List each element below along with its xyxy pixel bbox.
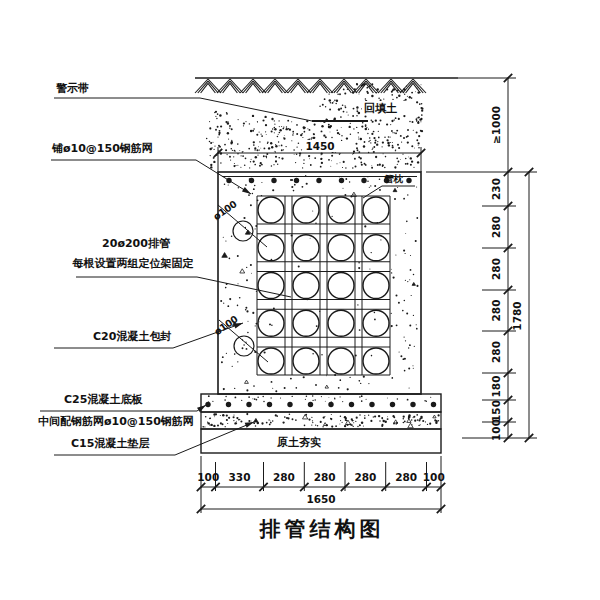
speckle (415, 91, 416, 92)
speckle (280, 397, 281, 398)
speckle (257, 121, 258, 122)
speckle (364, 163, 366, 165)
right-dim-label: 280 (490, 341, 502, 363)
speckle (235, 165, 236, 166)
speckle (266, 422, 268, 424)
backfill-speckles (206, 83, 424, 169)
speckle (403, 422, 405, 424)
speckle (399, 351, 400, 352)
aggregate-triangle (393, 188, 397, 191)
speckle (223, 388, 225, 390)
speckle (243, 217, 245, 219)
speckle (402, 154, 403, 155)
speckle (374, 185, 376, 187)
compacted-soil-band (201, 429, 441, 453)
speckle (334, 100, 336, 102)
speckle (286, 128, 288, 130)
speckle (243, 122, 245, 124)
speckle (245, 307, 247, 309)
speckle (409, 344, 411, 346)
speckle (252, 398, 253, 399)
speckle (425, 421, 426, 422)
pipe-circle (363, 197, 389, 223)
speckle (400, 91, 401, 92)
speckle (363, 425, 364, 426)
speckle (323, 416, 325, 418)
speckle (379, 119, 381, 121)
speckle (411, 295, 412, 296)
speckle (231, 128, 233, 130)
speckle (246, 310, 248, 312)
speckle (308, 419, 310, 421)
speckle (359, 424, 361, 426)
speckle (368, 129, 369, 130)
speckle (397, 90, 399, 92)
speckle (220, 125, 222, 127)
speckle (296, 124, 298, 126)
speckle (336, 130, 338, 132)
speckle (424, 400, 426, 402)
speckle (253, 128, 254, 129)
speckle (380, 239, 381, 240)
speckle (282, 421, 284, 423)
speckle (309, 129, 311, 131)
speckle (206, 138, 207, 139)
speckle (394, 166, 396, 168)
speckle (406, 313, 408, 315)
speckle (414, 420, 416, 422)
speckle (254, 149, 255, 150)
pipe-circle (293, 235, 319, 261)
right-dim-label: 100 (490, 419, 502, 441)
speckle (234, 353, 236, 355)
speckle (421, 108, 423, 110)
speckle (395, 294, 397, 296)
speckle (222, 414, 224, 416)
speckle (329, 109, 331, 111)
speckle (274, 127, 276, 129)
speckle (364, 225, 366, 227)
speckle (281, 145, 283, 147)
speckle (272, 388, 273, 389)
speckle (325, 401, 326, 402)
speckle (335, 425, 337, 427)
speckle (328, 159, 330, 161)
speckle (370, 119, 372, 121)
speckle (350, 123, 351, 124)
pipe-circle (293, 348, 319, 374)
speckle (347, 89, 348, 90)
speckle (386, 123, 388, 125)
speckle (212, 401, 213, 402)
speckle (391, 120, 393, 122)
speckle (234, 396, 236, 398)
speckle (311, 424, 312, 425)
speckle (346, 112, 347, 113)
speckle (404, 421, 406, 423)
speckle (413, 416, 415, 418)
speckle (233, 416, 235, 418)
speckle (365, 124, 367, 126)
speckle (400, 135, 402, 137)
speckle (214, 416, 215, 417)
speckle (405, 233, 406, 234)
speckle (248, 194, 250, 196)
speckle (372, 148, 373, 149)
speckle (213, 161, 215, 163)
speckle (357, 304, 358, 305)
speckle (293, 190, 295, 192)
speckle (248, 396, 250, 398)
speckle (252, 193, 254, 195)
pipe-circle (258, 235, 284, 261)
rebar-dot (294, 178, 299, 183)
speckle (397, 144, 399, 146)
speckle (226, 113, 228, 115)
speckle (438, 414, 440, 416)
speckle (279, 145, 280, 146)
speckle (313, 137, 315, 139)
speckle (375, 120, 377, 122)
speckle (291, 186, 293, 188)
aggregate-triangle (407, 419, 411, 423)
speckle (410, 255, 411, 256)
speckle (416, 324, 417, 325)
speckle (369, 268, 370, 269)
speckle (236, 423, 238, 425)
speckle (226, 353, 227, 354)
speckle (273, 164, 274, 165)
speckle (215, 111, 217, 113)
speckle (306, 395, 308, 397)
speckle (405, 340, 406, 341)
speckle (261, 422, 263, 424)
speckle (397, 161, 399, 163)
leader-line (173, 323, 243, 348)
speckle (249, 167, 250, 168)
speckle (411, 145, 413, 147)
speckle (408, 156, 409, 157)
speckle (410, 269, 412, 271)
speckle (208, 401, 209, 402)
speckle (259, 149, 260, 150)
speckle (330, 166, 331, 167)
speckle (391, 377, 393, 379)
speckle (313, 133, 315, 135)
speckle (375, 156, 377, 158)
speckle (274, 128, 276, 130)
speckle (316, 325, 318, 327)
speckle (232, 366, 233, 367)
speckle (404, 358, 406, 360)
speckle (274, 151, 275, 152)
speckle (365, 128, 368, 131)
speckle (306, 183, 308, 185)
speckle (368, 141, 369, 142)
speckle (338, 108, 340, 110)
speckle (293, 133, 294, 134)
speckle (345, 167, 346, 168)
speckle (346, 138, 348, 140)
speckle (233, 156, 234, 157)
speckle (352, 91, 354, 93)
speckle (353, 426, 354, 427)
speckle (328, 397, 329, 398)
speckle (355, 165, 357, 167)
speckle (374, 415, 376, 417)
speckle (334, 398, 335, 399)
speckle (265, 124, 267, 126)
rebar-dot (205, 402, 210, 407)
speckle (339, 134, 340, 135)
drawing-sheet: 回填土 警示带 铺ø10@150钢筋网 1450 ø100 ø100 管枕 20… (0, 0, 600, 600)
speckle (371, 167, 373, 169)
speckle (311, 137, 312, 138)
speckle (338, 387, 340, 389)
speckle (275, 144, 276, 145)
speckle (340, 420, 341, 421)
speckle (253, 385, 255, 387)
speckle (219, 130, 221, 132)
speckle (228, 184, 229, 185)
speckle (390, 124, 391, 125)
speckle (370, 252, 371, 253)
speckle (369, 85, 371, 87)
speckle (314, 157, 316, 159)
speckle (370, 142, 371, 143)
speckle (416, 285, 418, 287)
speckle (256, 134, 258, 136)
speckle (274, 120, 275, 121)
speckle (284, 135, 285, 136)
speckle (322, 426, 323, 427)
pipe-circle (363, 310, 389, 336)
speckle (279, 129, 281, 131)
speckle (416, 328, 418, 330)
speckle (282, 128, 284, 130)
pipe-circle (293, 197, 319, 223)
speckle (298, 265, 300, 267)
speckle (312, 400, 313, 401)
rebar-dot (267, 402, 272, 407)
speckle (392, 145, 394, 147)
speckle (225, 426, 226, 427)
ground-hatch (230, 81, 240, 93)
speckle (250, 130, 252, 132)
speckle (227, 305, 229, 307)
speckle (209, 148, 211, 150)
speckle (310, 238, 311, 239)
speckle (396, 158, 398, 160)
speckle (407, 281, 408, 282)
speckle (396, 130, 398, 132)
speckle (253, 144, 255, 146)
encasement-label: C20混凝土包封 (93, 330, 171, 343)
speckle (407, 129, 409, 131)
speckle (292, 131, 294, 133)
speckle (417, 161, 419, 163)
speckle (311, 417, 312, 418)
speckle (373, 137, 375, 139)
speckle (392, 146, 394, 148)
speckle (209, 424, 211, 426)
speckle (360, 162, 362, 164)
speckle (246, 267, 247, 268)
speckle (421, 84, 422, 85)
speckle (319, 105, 321, 107)
speckle (205, 416, 207, 418)
speckle (336, 99, 338, 101)
speckle (285, 146, 286, 147)
speckle (360, 138, 362, 140)
speckle (226, 419, 228, 421)
speckle (321, 125, 323, 127)
dim-cover-depth: ≥1000 (490, 106, 502, 144)
pipe-grid (257, 196, 390, 375)
speckle (407, 399, 409, 401)
speckle (345, 107, 347, 109)
speckle (342, 188, 343, 189)
right-dim-label: 280 (490, 216, 502, 238)
speckle (359, 329, 361, 331)
speckle (390, 137, 391, 138)
speckle (232, 150, 233, 151)
speckle (341, 140, 342, 141)
speckle (337, 94, 339, 96)
speckle (246, 413, 248, 415)
speckle (438, 420, 439, 421)
speckle (295, 162, 296, 163)
speckle (400, 355, 402, 357)
speckle (237, 283, 238, 284)
aggregate-triangle (325, 385, 328, 388)
speckle (239, 297, 241, 299)
speckle (361, 400, 363, 402)
speckle (384, 137, 386, 139)
ground-hatch (265, 81, 275, 93)
speckle (414, 346, 415, 347)
speckle (420, 130, 422, 132)
speckle (270, 142, 272, 144)
ground-hatch (220, 81, 230, 93)
speckle (279, 132, 281, 134)
speckle (341, 135, 342, 136)
speckle (321, 354, 323, 356)
speckle (237, 143, 239, 145)
ground-hatch (208, 81, 218, 93)
speckle (221, 361, 223, 363)
speckle (300, 134, 302, 136)
speckle (310, 164, 312, 166)
speckle (382, 166, 384, 168)
speckle (320, 158, 322, 160)
speckle (378, 131, 379, 132)
speckle (303, 159, 305, 161)
speckle (352, 115, 354, 117)
speckle (264, 351, 266, 353)
speckle (355, 143, 357, 145)
speckle (374, 312, 376, 314)
speckle (215, 129, 217, 131)
speckle (418, 116, 420, 118)
speckle (405, 163, 407, 165)
speckle (312, 420, 313, 421)
speckle (218, 145, 220, 147)
speckle (275, 151, 276, 152)
speckle (419, 92, 420, 93)
speckle (364, 115, 366, 117)
speckle (262, 396, 264, 398)
leader-arrowhead (242, 187, 252, 196)
speckle (224, 144, 226, 146)
pipe-bank-structure-drawing: 回填土 警示带 铺ø10@150钢筋网 1450 ø100 ø100 管枕 20… (0, 0, 600, 600)
rebar-dot (410, 402, 415, 407)
speckle (371, 95, 373, 97)
speckle (361, 395, 363, 397)
speckle (275, 160, 277, 162)
speckle (373, 416, 374, 417)
speckle (392, 132, 393, 133)
speckle (275, 390, 277, 392)
speckle (360, 383, 361, 384)
speckle (385, 156, 387, 158)
speckle (303, 376, 305, 378)
aggregate-triangle (222, 253, 228, 258)
speckle (418, 145, 419, 146)
speckle (407, 194, 408, 195)
base-slab-label: C25混凝土底板 (64, 393, 143, 406)
speckle (229, 258, 231, 260)
speckle (248, 420, 250, 422)
speckle (397, 164, 398, 165)
speckle (292, 134, 294, 136)
speckle (210, 166, 212, 168)
speckle (420, 121, 421, 122)
speckle (270, 420, 271, 421)
speckle (230, 160, 231, 161)
speckle (336, 163, 337, 164)
pipe-circle (328, 348, 354, 374)
pipe-circle (258, 348, 284, 374)
speckle (224, 399, 226, 401)
speckle (309, 158, 310, 159)
speckle (212, 142, 213, 143)
speckle (349, 126, 351, 128)
speckle (339, 424, 340, 425)
speckle (332, 102, 334, 104)
speckle (409, 387, 410, 388)
speckle (356, 127, 357, 128)
warning-tape-label: 警示带 (56, 82, 89, 95)
speckle (278, 134, 279, 135)
rebar-dot (226, 402, 231, 407)
cushion-texture (202, 413, 439, 428)
speckle (284, 416, 286, 418)
speckle (287, 120, 289, 122)
speckle (395, 254, 396, 255)
speckle (403, 418, 405, 420)
speckle (353, 128, 354, 129)
speckle (429, 423, 431, 425)
speckle (378, 123, 380, 125)
speckle (341, 422, 342, 423)
speckle (302, 137, 303, 138)
speckle (237, 305, 239, 307)
speckle (283, 138, 285, 140)
speckle (253, 160, 255, 162)
speckle (357, 132, 359, 134)
rebar-dot (246, 402, 251, 407)
